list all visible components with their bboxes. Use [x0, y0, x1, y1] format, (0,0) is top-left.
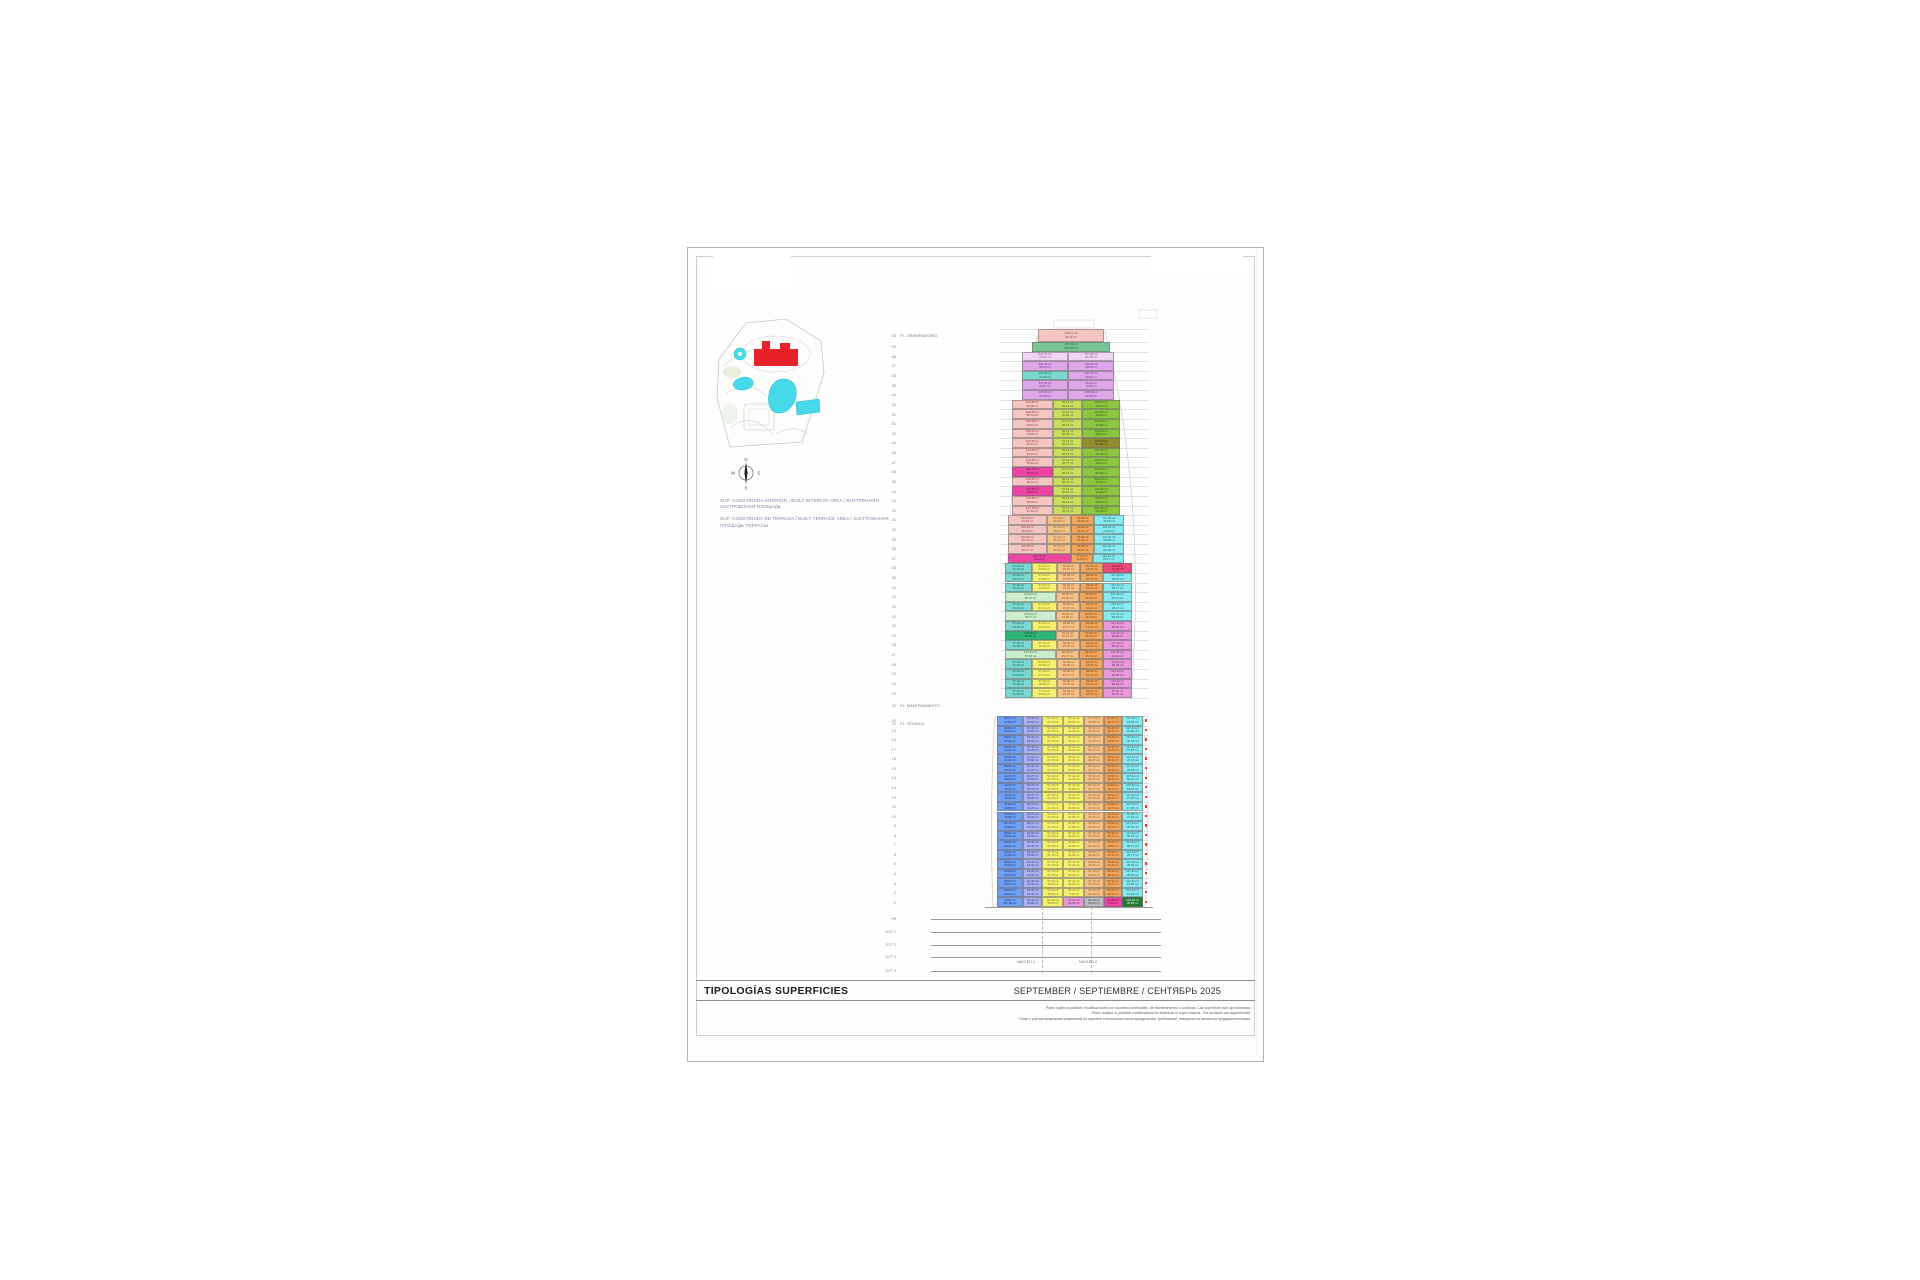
terrace-area: 18.26 m² — [1004, 778, 1015, 781]
terrace-area: 18.92 m² — [1027, 740, 1038, 743]
terrace-area: 22.29 m² — [1088, 721, 1099, 724]
unit-cell: 57.14 m²20.36 m² — [1063, 869, 1084, 879]
unit-cell: 103.35 m²81.08 m² — [1012, 400, 1053, 410]
terrace-area: 14.21 m² — [1086, 626, 1097, 629]
unit-cell: 87.14 m²93.25 m² — [1063, 897, 1084, 907]
unit-cell: 117.21 m²19.44 m² — [1122, 783, 1143, 793]
terrace-area: 44.97 m² — [1013, 664, 1024, 667]
floor-number: 51 — [881, 421, 896, 426]
terrace-area: 43.20 m² — [1095, 491, 1106, 494]
terrace-area: 55.80 m² — [1095, 481, 1106, 484]
unit-cell: 50.38 m²15.27 m² — [1071, 525, 1094, 535]
unit-cell: 59.61 m²43.94 m² — [997, 716, 1023, 726]
unit-cell: 57.14 m²22.29 m² — [1084, 716, 1104, 726]
terrace-area: 16.94 m² — [1047, 883, 1058, 886]
terrace-area: 56.17 m² — [1022, 549, 1033, 552]
floor-number: 15 — [881, 766, 896, 771]
unit-cell: 131.80 m²68.56 m² — [1068, 361, 1114, 371]
terrace-area: 44.21 m² — [1013, 607, 1024, 610]
terrace-area: 28.23 m² — [1112, 616, 1123, 619]
floor-number: 53 — [881, 402, 896, 407]
terrace-area: 22.39 m² — [1068, 749, 1079, 752]
floor-row: 107.42 m²74.46 m²131.46 m²33.54 m² — [1022, 371, 1114, 381]
floor-number: 58 — [881, 354, 896, 359]
terrace-area: 43.27 m² — [1004, 883, 1015, 886]
unit-cell: 54.32 m²14.21 m² — [1080, 563, 1103, 573]
floor-row: 103.35 m²94.42 m²57.14 m²25.79 m²104.46 … — [1012, 448, 1120, 458]
terrace-area: 22.29 m² — [1088, 845, 1099, 848]
terrace-area: 15.95 m² — [1127, 721, 1138, 724]
basement-line — [931, 932, 1161, 933]
terrace-area: 86.41 m² — [1027, 443, 1038, 446]
unit-cell: 61.34 m²18.92 m² — [1023, 735, 1043, 745]
unit-cell: 57.14 m²25.34 m² — [1047, 544, 1072, 554]
unit-cell: 57.14 m²25.41 m² — [1053, 419, 1083, 429]
terrace-area: 13.98 m² — [1039, 578, 1050, 581]
terrace-area: 21.83 m² — [1047, 816, 1058, 819]
floor-number: 13 — [881, 785, 896, 790]
unit-cell: 103.35 m²62.79 m² — [1012, 409, 1053, 419]
unit-cell: 117.23 m²19.18 m² — [1122, 888, 1143, 898]
unit-cell: 118.03 m²78.77 m² — [1005, 611, 1056, 621]
terrace-area: 15.90 m² — [1027, 759, 1038, 762]
floor-row: 103.35 m²81.08 m²57.14 m²25.34 m²103.20 … — [1012, 400, 1120, 410]
unit-cell: 111.20 m²15.94 m² — [1094, 515, 1124, 525]
floor-row: 59.61 m²117.08 m²61.34 m²25.80 m²87.14 m… — [997, 897, 1143, 907]
terrace-area: 46.38 m² — [1039, 395, 1050, 398]
unit-cell: 57.14 m²13.98 m² — [1032, 573, 1057, 583]
compass-w: W — [731, 471, 736, 476]
floor-row: 57.52 m²32.04 m²57.14 m²13.03 m²50.38 m²… — [1005, 583, 1132, 593]
floor-number: 22 — [881, 703, 896, 708]
floor-row: 59.61 m²44.22 m²61.34 m²16.78 m²57.14 m²… — [997, 840, 1143, 850]
terrace-area: 19.71 m² — [1107, 893, 1118, 896]
terrace-area: 14.21 m² — [1086, 683, 1097, 686]
level-mark — [1145, 891, 1147, 893]
floor-number: 28 — [881, 642, 896, 647]
unit-cell: 61.34 m²18.92 m² — [1023, 716, 1043, 726]
unit-cell: 57.14 m²25.48 m² — [1053, 429, 1083, 439]
unit-cell: 57.14 m²21.93 m² — [1084, 878, 1104, 888]
core-axis — [1042, 907, 1043, 973]
floor-number: 43 — [881, 498, 896, 503]
unit-cell: 100.35 m²56.17 m² — [1008, 544, 1047, 554]
terrace-area: 56.11 m² — [1027, 481, 1038, 484]
terrace-area: 21.70 m² — [1047, 874, 1058, 877]
unit-cell: 104.35 m²65.79 m² — [1082, 467, 1120, 477]
unit-cell: 87.14 m²41.24 m² — [1063, 859, 1084, 869]
unit-cell: 131.26 m²98.14 m² — [1022, 361, 1068, 371]
floor-number: 38 — [881, 546, 896, 551]
unit-cell: 54.54 m²14.74 m² — [1104, 821, 1122, 831]
unit-cell: 61.34 m²16.78 m² — [1023, 764, 1043, 774]
unit-cell: 57.14 m²22.17 m² — [1084, 783, 1104, 793]
unit-cell: 57.14 m²25.34 m² — [1053, 438, 1083, 448]
unit-cell: 61.34 m²31.94 m² — [1023, 878, 1043, 888]
terrace-area: 21.83 m² — [1068, 788, 1079, 791]
floor-number: 41 — [881, 517, 896, 522]
terrace-area: 19.71 m² — [1107, 730, 1118, 733]
terrace-area: 22.17 m² — [1088, 788, 1099, 791]
floor-number: 31 — [881, 614, 896, 619]
unit-cell: 50.38 m²15.27 m² — [1057, 688, 1080, 698]
terrace-area: 15.27 m² — [1063, 693, 1074, 696]
floor-row: 100.35 m²55.35 m²57.14 m²25.82 m²50.38 m… — [1008, 525, 1124, 535]
terrace-area: 98.59 m² — [1025, 635, 1036, 638]
terrace-area: 22.39 m² — [1068, 769, 1079, 772]
unit-cell: 61.34 m²16.78 m² — [1023, 840, 1043, 850]
terrace-area: 15.35 m² — [1077, 539, 1088, 542]
terrace-area: 95.89 m² — [1127, 902, 1138, 905]
unit-cell: 50.38 m²15.27 m² — [1057, 583, 1080, 593]
lap-pool — [796, 399, 820, 415]
terrace-area: 35.95 m² — [1127, 835, 1138, 838]
floor-row: 59.61 m²43.94 m²61.34 m²15.90 m²57.14 m²… — [997, 831, 1143, 841]
floor-row: 175.39 m²98.59 m²57.14 m²15.27 m²54.32 m… — [1005, 631, 1132, 641]
terrace-area: 70.46 m² — [1085, 385, 1096, 388]
terrace-area: 16.78 m² — [1027, 845, 1038, 848]
unit-cell: 57.14 m²22.39 m² — [1063, 754, 1084, 764]
unit-cell: 57.14 m²18.46 m² — [1032, 640, 1057, 650]
terrace-area: 21.70 m² — [1047, 769, 1058, 772]
unit-cell: 177.14 m²177.07 m² — [1032, 342, 1110, 352]
terrace-area: 81.08 m² — [1027, 405, 1038, 408]
floor-row: 57.02 m²32.13 m²57.14 m²13.03 m²50.38 m²… — [1005, 563, 1132, 573]
terrace-area: 79.24 m² — [1034, 558, 1045, 561]
basement-label: SOT 1 — [881, 930, 896, 934]
terrace-area: 20.85 m² — [1095, 414, 1106, 417]
terrace-area: 15.90 m² — [1027, 835, 1038, 838]
unit-cell: 44.27 m²18.26 m² — [997, 783, 1023, 793]
unit-cell: 57.14 m²21.83 m² — [1063, 783, 1084, 793]
terrace-area: 21.93 m² — [1088, 807, 1099, 810]
floor-number: 37 — [881, 556, 896, 561]
floor-row: 41.13 m²15.85 m²60.74 m²16.78 m²57.14 m²… — [997, 821, 1143, 831]
unit-cell: 57.14 m²22.17 m² — [1084, 754, 1104, 764]
unit-cell: 117.21 m²27.34 m² — [1122, 792, 1143, 802]
terrace-area: 22.39 m² — [1068, 854, 1079, 857]
terrace-area: 21.83 m² — [1068, 826, 1079, 829]
unit-cell: 57.14 m²21.70 m² — [1042, 840, 1063, 850]
terrace-area: 18.26 m² — [1004, 797, 1015, 800]
terrace-area: 22.29 m² — [1088, 864, 1099, 867]
unit-cell: 57.14 m²21.70 m² — [1042, 716, 1063, 726]
unit-cell: 59.32 m²19.57 m² — [1104, 840, 1122, 850]
terrace-area: 21.70 m² — [1047, 788, 1058, 791]
terrace-area: 68.56 m² — [1085, 366, 1096, 369]
terrace-area: 22.29 m² — [1088, 740, 1099, 743]
unit-cell: 50.38 m²15.27 m² — [1057, 669, 1080, 679]
legend-terrace: SUP. CONSTRUIDA DE TERRAZA / BUILT TERRA… — [720, 516, 890, 528]
floor-row: 59.63 m²43.94 m²61.34 m²14.20 m²57.14 m²… — [997, 888, 1143, 898]
floor-row: 100.35 m²55.38 m²57.14 m²25.34 m²103.20 … — [1012, 496, 1120, 506]
terrace-area: 18.46 m² — [1039, 645, 1050, 648]
ground-line — [985, 907, 1153, 908]
unit-cell: 61.34 m²25.80 m² — [1023, 897, 1043, 907]
unit-cell: 57.14 m²22.29 m² — [1084, 831, 1104, 841]
terrace-area: 15.27 m² — [1077, 530, 1088, 533]
unit-cell: 103.20 m²29.84 m² — [1082, 457, 1120, 467]
unit-cell: 54.54 m²14.74 m² — [1104, 802, 1122, 812]
terrace-area: 91.30 m² — [1065, 336, 1076, 339]
unit-cell: 57.14 m²21.70 m² — [1042, 802, 1063, 812]
terrace-area: 15.27 m² — [1063, 626, 1074, 629]
floor-number: 4 — [881, 871, 896, 876]
unit-cell: 118.11 m²91.30 m² — [1038, 329, 1104, 342]
terrace-area: 22.39 m² — [1068, 845, 1079, 848]
terrace-area: 75.46 m² — [1095, 424, 1106, 427]
terrace-area: 15.46 m² — [1112, 568, 1123, 571]
terrace-area: 21.93 m² — [1088, 893, 1099, 896]
unit-cell: 117.21 m²25.17 m² — [1103, 602, 1132, 612]
unit-cell: 57.14 m²22.17 m² — [1084, 745, 1104, 755]
terrace-area: 25.28 m² — [1127, 769, 1138, 772]
unit-cell: 101.73 m²97.94 m² — [1012, 506, 1053, 516]
unit-cell: 61.34 m²14.20 m² — [1023, 859, 1043, 869]
unit-cell: 57.14 m²21.83 m² — [1042, 812, 1063, 822]
compass-icon: N S W E — [731, 456, 761, 490]
unit-cell: 59.63 m²43.27 m² — [997, 878, 1023, 888]
terrace-area: 33.54 m² — [1085, 376, 1096, 379]
unit-cell: 54.54 m²18.14 m² — [1104, 773, 1122, 783]
terrace-area: 18.46 m² — [1039, 664, 1050, 667]
terrace-area: 15.90 m² — [1027, 854, 1038, 857]
unit-cell: 87.14 m²7.43 m² — [1063, 888, 1084, 898]
terrace-area: 25.34 m² — [1053, 520, 1064, 523]
terrace-area: 94.42 m² — [1027, 453, 1038, 456]
terrace-area: 22.29 m² — [1088, 730, 1099, 733]
level-mark — [1145, 862, 1147, 864]
terrace-area: 92.30 m² — [1085, 395, 1096, 398]
terrace-area: 14.74 m² — [1107, 807, 1118, 810]
floor-row: 118.11 m²91.30 m² — [1038, 329, 1104, 342]
unit-cell: 117.21 m²35.95 m² — [1122, 831, 1143, 841]
terrace-area: 25.30 m² — [1127, 874, 1138, 877]
floor-row: 44.27 m²18.26 m²60.74 m²15.90 m²57.14 m²… — [997, 792, 1143, 802]
terrace-area: 15.27 m² — [1063, 568, 1074, 571]
terrace-area: 25.82 m² — [1053, 530, 1064, 533]
unit-cell: 100.35 m²62.79 m² — [1008, 534, 1047, 544]
unit-cell: 57.02 m²34.38 m² — [1005, 679, 1032, 689]
unit-cell: 103.40 m²75.46 m² — [1082, 419, 1120, 429]
terrace-area: 16.78 m² — [1027, 788, 1038, 791]
unit-cell: 111.73 m²79.24 m² — [1008, 554, 1071, 564]
unit-cell: 57.14 m²25.82 m² — [1053, 486, 1083, 496]
terrace-area: 15.90 m² — [1027, 797, 1038, 800]
terrace-area: 55.05 m² — [1047, 902, 1058, 905]
terrace-area: 18.14 m² — [1107, 778, 1118, 781]
floor-row: 59.61 m²43.94 m²61.34 m²15.90 m²57.17 m²… — [997, 850, 1143, 860]
floor-number: 19 — [881, 728, 896, 733]
unit-cell: 60.74 m²16.78 m² — [1023, 821, 1043, 831]
title-band: TIPOLOGÍAS SUPERFICIES SEPTEMBER / SEPTI… — [696, 980, 1255, 1001]
terrace-area: 91.39 m² — [1022, 520, 1033, 523]
unit-cell: 54.32 m²14.21 m² — [1080, 659, 1103, 669]
unit-cell: 59.63 m²43.94 m² — [997, 869, 1023, 879]
floor-number: 29 — [881, 633, 896, 638]
terrace-area: 14.21 m² — [1086, 607, 1097, 610]
unit-cell: 59.63 m²43.94 m² — [997, 888, 1023, 898]
terrace-area: 29.17 m² — [1103, 558, 1114, 561]
unit-cell: 54.54 m²14.74 m² — [1104, 783, 1122, 793]
terrace-area: 21.70 m² — [1047, 730, 1058, 733]
unit-cell: 57.14 m²21.70 m² — [1042, 735, 1063, 745]
unit-cell: 107.42 m²74.46 m² — [1022, 371, 1068, 381]
terrace-area: 62.79 m² — [1022, 539, 1033, 542]
unit-cell: 117.21 m²28.23 m² — [1103, 611, 1132, 621]
terrace-area: 13.03 m² — [1039, 568, 1050, 571]
terrace-area: 16.70 m² — [1085, 655, 1096, 658]
terrace-area: 25.79 m² — [1062, 453, 1073, 456]
terrace-area: 15.35 m² — [1062, 597, 1073, 600]
terrace-area: 22.39 m² — [1068, 730, 1079, 733]
terrace-area: 15.27 m² — [1063, 587, 1074, 590]
level-mark — [1145, 882, 1147, 884]
unit-cell: 61.34 m²15.90 m² — [1023, 831, 1043, 841]
floor-row: 57.02 m²34.38 m²57.14 m²18.46 m²50.38 m²… — [1005, 621, 1132, 631]
terrace-area: 75.24 m² — [1027, 472, 1038, 475]
unit-cell: 117.21 m²26.88 m² — [1103, 631, 1132, 641]
terrace-area: 20.16 m² — [1103, 549, 1114, 552]
terrace-area: 15.27 m² — [1107, 883, 1118, 886]
floor-row: 111.73 m²79.24 m²57.14 m²16.82 m²111.24 … — [1008, 554, 1124, 564]
terrace-area: 18.34 m² — [1107, 769, 1118, 772]
logo-placeholder — [713, 254, 791, 286]
terrace-area: 19.57 m² — [1107, 845, 1118, 848]
unit-cell: 54.32 m²14.21 m² — [1080, 583, 1103, 593]
unit-cell: 117.21 m²19.83 m² — [1122, 745, 1143, 755]
terrace-area: 41.30 m² — [1013, 693, 1024, 696]
unit-cell: 50.38 m²15.35 m² — [1056, 592, 1079, 602]
unit-cell: 57.14 m²18.83 m² — [1063, 878, 1084, 888]
terrace-area: 25.82 m² — [1062, 414, 1073, 417]
disclaimer-block: Plano sujeto a posibles modificaciones p… — [831, 1006, 1251, 1022]
unit-cell: 57.14 m²21.70 m² — [1042, 726, 1063, 736]
terrace-area: 93.25 m² — [1068, 902, 1079, 905]
unit-cell: 117.24 m²29.17 m² — [1103, 592, 1132, 602]
terrace-area: 19.57 m² — [1107, 740, 1118, 743]
terrace-area: 25.34 m² — [1062, 481, 1073, 484]
unit-cell: 117.24 m²29.24 m² — [1103, 573, 1132, 583]
level-mark — [1145, 786, 1147, 788]
terrace-area: 32.04 m² — [1013, 587, 1024, 590]
unit-cell: 57.14 m²21.70 m² — [1042, 831, 1063, 841]
terrace-area: 21.70 m² — [1047, 721, 1058, 724]
terrace-area: 14.21 m² — [1086, 664, 1097, 667]
terrace-area: 47.44 m² — [1039, 607, 1050, 610]
terrace-area: 15.90 m² — [1027, 816, 1038, 819]
terrace-area: 42.27 m² — [1013, 674, 1024, 677]
unit-cell: 54.32 m²16.70 m² — [1080, 688, 1103, 698]
terrace-area: 15.27 m² — [1063, 607, 1074, 610]
terrace-area: 14.20 m² — [1027, 893, 1038, 896]
floor-number: 1 — [881, 900, 896, 905]
unit-cell: 54.54 m²18.14 m² — [1104, 812, 1122, 822]
unit-cell: 57.14 m²21.93 m² — [1084, 888, 1104, 898]
terrace-area: 43.94 m² — [1004, 864, 1015, 867]
unit-cell: 54.32 m²14.21 m² — [1080, 640, 1103, 650]
floor-number: 49 — [881, 440, 896, 445]
floor-number: 39 — [881, 537, 896, 542]
terrace-area: 18.46 m² — [1039, 683, 1050, 686]
unit-cell: 59.61 m²43.94 m² — [997, 859, 1023, 869]
unit-cell: 117.21 m²26.88 m² — [1103, 669, 1132, 679]
floor-row: 87.40 m²44.97 m²57.14 m²18.46 m²50.38 m²… — [1005, 659, 1132, 669]
terrace-area: 17.25 m² — [1127, 807, 1138, 810]
terrace-area: 80.61 m² — [1095, 433, 1106, 436]
terrace-area: 43.94 m² — [1004, 874, 1015, 877]
unit-cell: 163.20 m²95.89 m² — [1122, 897, 1143, 907]
floor-number: 32 — [881, 604, 896, 609]
terrace-area: 14.21 m² — [1086, 587, 1097, 590]
floor-number: 16 — [881, 756, 896, 761]
terrace-area: 85.29 m² — [1112, 664, 1123, 667]
unit-cell: 59.61 m²46.21 m² — [997, 754, 1023, 764]
terrace-area: 40.23 m² — [1127, 740, 1138, 743]
terrace-area: 15.35 m² — [1063, 683, 1074, 686]
unit-cell: 54.32 m²16.70 m² — [1080, 669, 1103, 679]
terrace-area: 25.30 m² — [1127, 864, 1138, 867]
unit-cell: 117.21 m²85.29 m² — [1103, 621, 1132, 631]
unit-cell: 51.14 m²21.93 m² — [1084, 792, 1104, 802]
terrace-area: 25.17 m² — [1112, 607, 1123, 610]
terrace-area: 16.70 m² — [1086, 674, 1097, 677]
unit-cell: 100.35 m²86.41 m² — [1012, 438, 1053, 448]
unit-cell: 57.14 m²21.70 m² — [1042, 773, 1063, 783]
terrace-area: 21.70 m² — [1047, 759, 1058, 762]
unit-cell: 57.14 m²21.70 m² — [1042, 869, 1063, 879]
terrace-area: 15.90 m² — [1027, 730, 1038, 733]
terrace-area: 70.81 m² — [1039, 356, 1050, 359]
terrace-area: 21.70 m² — [1047, 797, 1058, 800]
unit-cell: 61.34 m²15.90 m² — [1023, 726, 1043, 736]
terrace-area: 21.83 m² — [1068, 797, 1079, 800]
terrace-area: 21.93 m² — [1027, 874, 1038, 877]
unit-cell: 57.14 m²22.17 m² — [1084, 773, 1104, 783]
floor-number: 47 — [881, 460, 896, 465]
terrace-area: 13.03 m² — [1039, 587, 1050, 590]
unit-cell: 117.21 m²15.95 m² — [1122, 716, 1143, 726]
floor-label: PL. MANTENIMIENTO — [900, 703, 940, 708]
unit-cell: 57.14 m²22.29 m² — [1084, 726, 1104, 736]
unit-cell: 103.20 m²28.34 m² — [1082, 496, 1120, 506]
floor-number: 11 — [881, 804, 896, 809]
floor-number: 17 — [881, 747, 896, 752]
terrace-area: 14.20 m² — [1027, 864, 1038, 867]
unit-cell: 104.35 m²20.85 m² — [1082, 409, 1120, 419]
floor-number: 48 — [881, 450, 896, 455]
floor-number: 20 — [881, 718, 896, 723]
terrace-area: 32.04 m² — [1013, 578, 1024, 581]
unit-cell: 57.14 m²21.70 m² — [1042, 792, 1063, 802]
floor-row: 59.61 m²43.94 m²61.34 m²18.92 m²57.14 m²… — [997, 716, 1143, 726]
level-mark — [1145, 834, 1147, 836]
unit-cell: 103.20 m²80.61 m² — [1082, 429, 1120, 439]
unit-cell: 117.21 m²25.28 m² — [1122, 764, 1143, 774]
unit-cell: 87.25 m²27.34 m² — [1122, 812, 1143, 822]
unit-cell: 117.21 m²15.88 m² — [1122, 878, 1143, 888]
terrace-area: 22.29 m² — [1088, 874, 1099, 877]
floor-number: 56 — [881, 373, 896, 378]
unit-cell: 51.14 m²21.93 m² — [1084, 812, 1104, 822]
floor-label: PL. OBSERVATORIO — [900, 333, 937, 338]
terrace-area: 21.83 m² — [1068, 807, 1079, 810]
terrace-area: 19.71 m² — [1107, 749, 1118, 752]
unit-cell: 111.20 m²26.88 m² — [1094, 534, 1124, 544]
unit-cell: 57.14 m²25.41 m² — [1047, 534, 1072, 544]
unit-cell: 50.38 m²15.27 m² — [1056, 650, 1079, 660]
unit-cell: 81.09 m²60.22 m² — [1084, 897, 1104, 907]
